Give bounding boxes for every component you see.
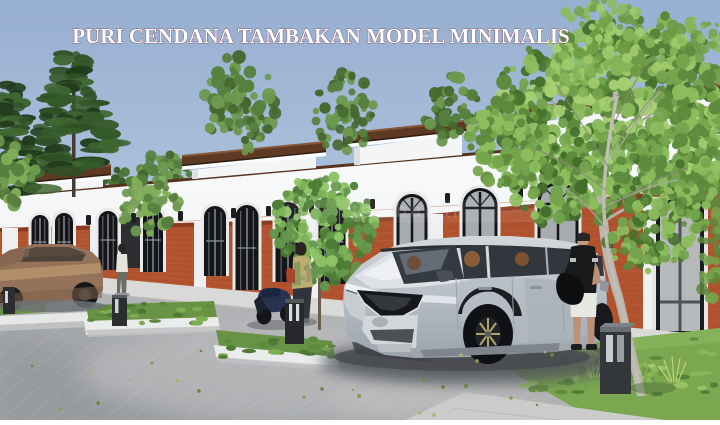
svg-text:tambakan: tambakan bbox=[352, 201, 467, 222]
svg-text:PURI CENDANA TAMBAKAN MODEL MI: PURI CENDANA TAMBAKAN MODEL MINIMALIS bbox=[72, 24, 569, 48]
